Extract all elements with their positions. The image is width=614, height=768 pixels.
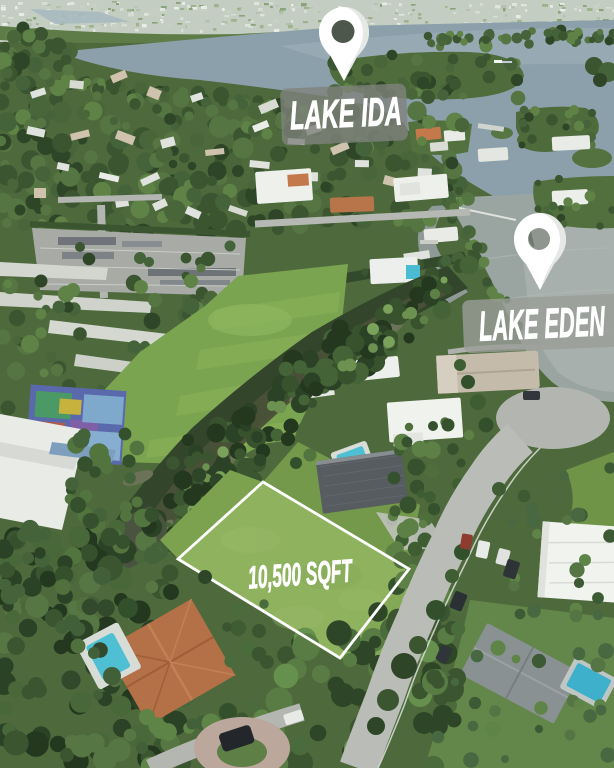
- svg-text:LAKE IDA: LAKE IDA: [289, 90, 403, 139]
- svg-text:10,500 SQFT: 10,500 SQFT: [247, 552, 355, 595]
- svg-text:LAKE EDEN: LAKE EDEN: [478, 297, 607, 349]
